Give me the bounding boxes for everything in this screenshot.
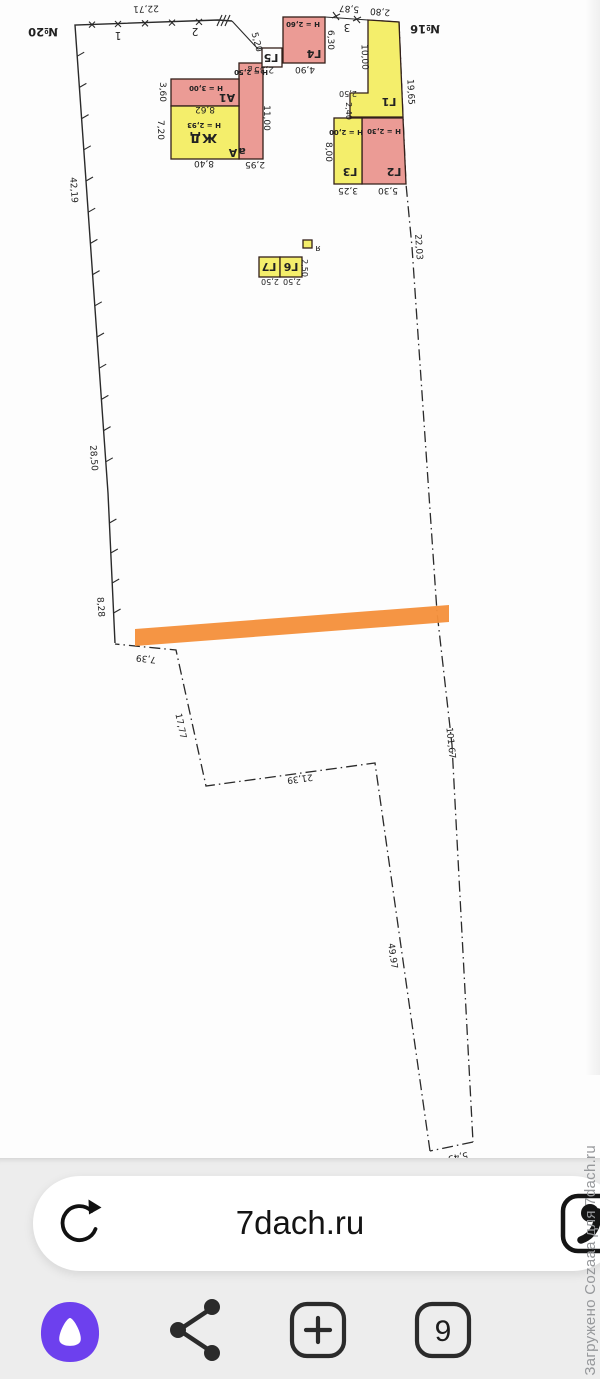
g1-dim-10-00: 10,00 (359, 44, 370, 70)
g3-label: Г3 (343, 165, 358, 178)
g7-label: Г7 (262, 260, 277, 273)
dim-5-87: 5,87 (339, 2, 360, 13)
a1-height: Н = 3,00 (189, 84, 223, 92)
plan-drawing: №20 №16 1 2 3 22,71 5,87 2,80 42,19 28,5… (0, 0, 600, 1158)
dim-8-28: 8,28 (94, 597, 105, 618)
a1-label: А1 (219, 91, 235, 104)
building-ya (303, 240, 312, 248)
highlight-strip (135, 605, 449, 646)
g6-dim-2-50: 2,50 (283, 277, 301, 286)
dim-7-39: 7,39 (135, 652, 156, 664)
a-small-dim-2-95: 2,95 (245, 159, 265, 169)
boundary-bottom (115, 644, 430, 1151)
neighbor-plot-left: №20 (28, 25, 58, 39)
a-small-dim-11-00: 11,00 (261, 105, 271, 131)
a-small-label: а (238, 145, 245, 158)
boundary-tick (97, 333, 104, 337)
neighbor-plot-right: №16 (410, 22, 440, 36)
dim-2-80: 2,80 (369, 5, 390, 16)
g5-dim-2-35: 2,35 (254, 64, 274, 74)
a1-dim-3-60: 3,60 (157, 82, 167, 102)
point-1: 1 (115, 29, 122, 41)
zhd-dim-8-62: 8,62 (195, 104, 215, 114)
scan-edge-shadow (585, 0, 600, 1075)
point-2: 2 (192, 25, 199, 37)
dim-21-39: 21,39 (286, 771, 313, 785)
tabs-count: 9 (435, 1315, 452, 1348)
survey-plan-image[interactable]: №20 №16 1 2 3 22,71 5,87 2,80 42,19 28,5… (0, 0, 600, 1158)
g1-dim-2-40: 2,40 (344, 102, 353, 120)
boundary-tick (82, 115, 89, 119)
dim-5-43: 5,43 (447, 1149, 469, 1158)
building-a-small (239, 63, 263, 159)
g2-label: Г2 (387, 165, 402, 178)
dim-28-50: 28,50 (87, 445, 99, 472)
dim-101-67: 101,67 (443, 727, 456, 759)
dim-49-97: 49,97 (385, 943, 398, 970)
g4-dim-4-90: 4,90 (295, 64, 315, 74)
g5-dim-5-20: 5,20 (249, 31, 264, 53)
g5-label: Г5 (264, 51, 279, 64)
boundary-tick (99, 364, 106, 368)
boundary-tick (77, 52, 84, 56)
boundary-tick (106, 458, 113, 462)
g1-label: Г1 (382, 95, 397, 108)
boundary-tick (93, 271, 100, 275)
boundary-tick (111, 549, 118, 553)
g6-label: Г6 (283, 260, 298, 273)
boundary-tick (88, 208, 95, 212)
boundary-tick (112, 579, 119, 583)
zhd-dim-7-20: 7,20 (155, 120, 165, 140)
boundary-tick (79, 83, 86, 87)
boundary-tick (95, 302, 102, 306)
ya-label: я (315, 243, 320, 253)
share-icon-dot1 (205, 1300, 220, 1315)
dim-17-77: 17,77 (172, 713, 187, 740)
dim-19-65: 19,65 (404, 79, 415, 105)
dim-42-19: 42,19 (67, 177, 79, 204)
boundary-tick (101, 395, 108, 399)
zhd-height: Н = 2,93 (187, 121, 221, 129)
g3-dim-3-25: 3,25 (338, 185, 358, 195)
share-icon-dot3 (205, 1346, 220, 1361)
g2-height: Н = 2,30 (367, 127, 401, 135)
g2-dim-5-30: 5,30 (378, 185, 398, 195)
g1-dim-2-50: 2,50 (339, 89, 357, 98)
zhd-litera: А (228, 146, 237, 159)
boundary-tick (104, 427, 111, 431)
dim-top: 22,71 (133, 3, 159, 14)
g4-label: Г4 (306, 47, 321, 60)
dim-22-03: 22,03 (412, 234, 424, 260)
porch-letter: в (247, 64, 252, 73)
boundary-tick (109, 519, 116, 523)
boundary-tick (86, 177, 93, 181)
point-3: 3 (344, 21, 351, 33)
g4-height: Н = 2,60 (286, 20, 320, 28)
boundary-tick (90, 239, 97, 243)
g7-dim-2-50: 2,50 (261, 277, 279, 286)
boundary-tick (114, 609, 121, 613)
boundary-right (399, 22, 473, 1142)
g4-dim-6-30: 6,30 (325, 30, 335, 50)
alice-button[interactable] (41, 1302, 99, 1362)
g7-dim-2-50-side: 2,50 (300, 259, 309, 277)
g3-height: Н = 2,00 (329, 128, 363, 136)
g3-dim-8-00: 8,00 (323, 142, 333, 162)
zhd-dim-8-40: 8,40 (194, 158, 214, 168)
zhd-label: ЖД (189, 131, 217, 146)
watermark-text: Загружено Cozaaa для 7dach.ru (582, 1145, 599, 1376)
boundary-tick (84, 146, 91, 150)
share-icon-dot2 (171, 1323, 186, 1338)
